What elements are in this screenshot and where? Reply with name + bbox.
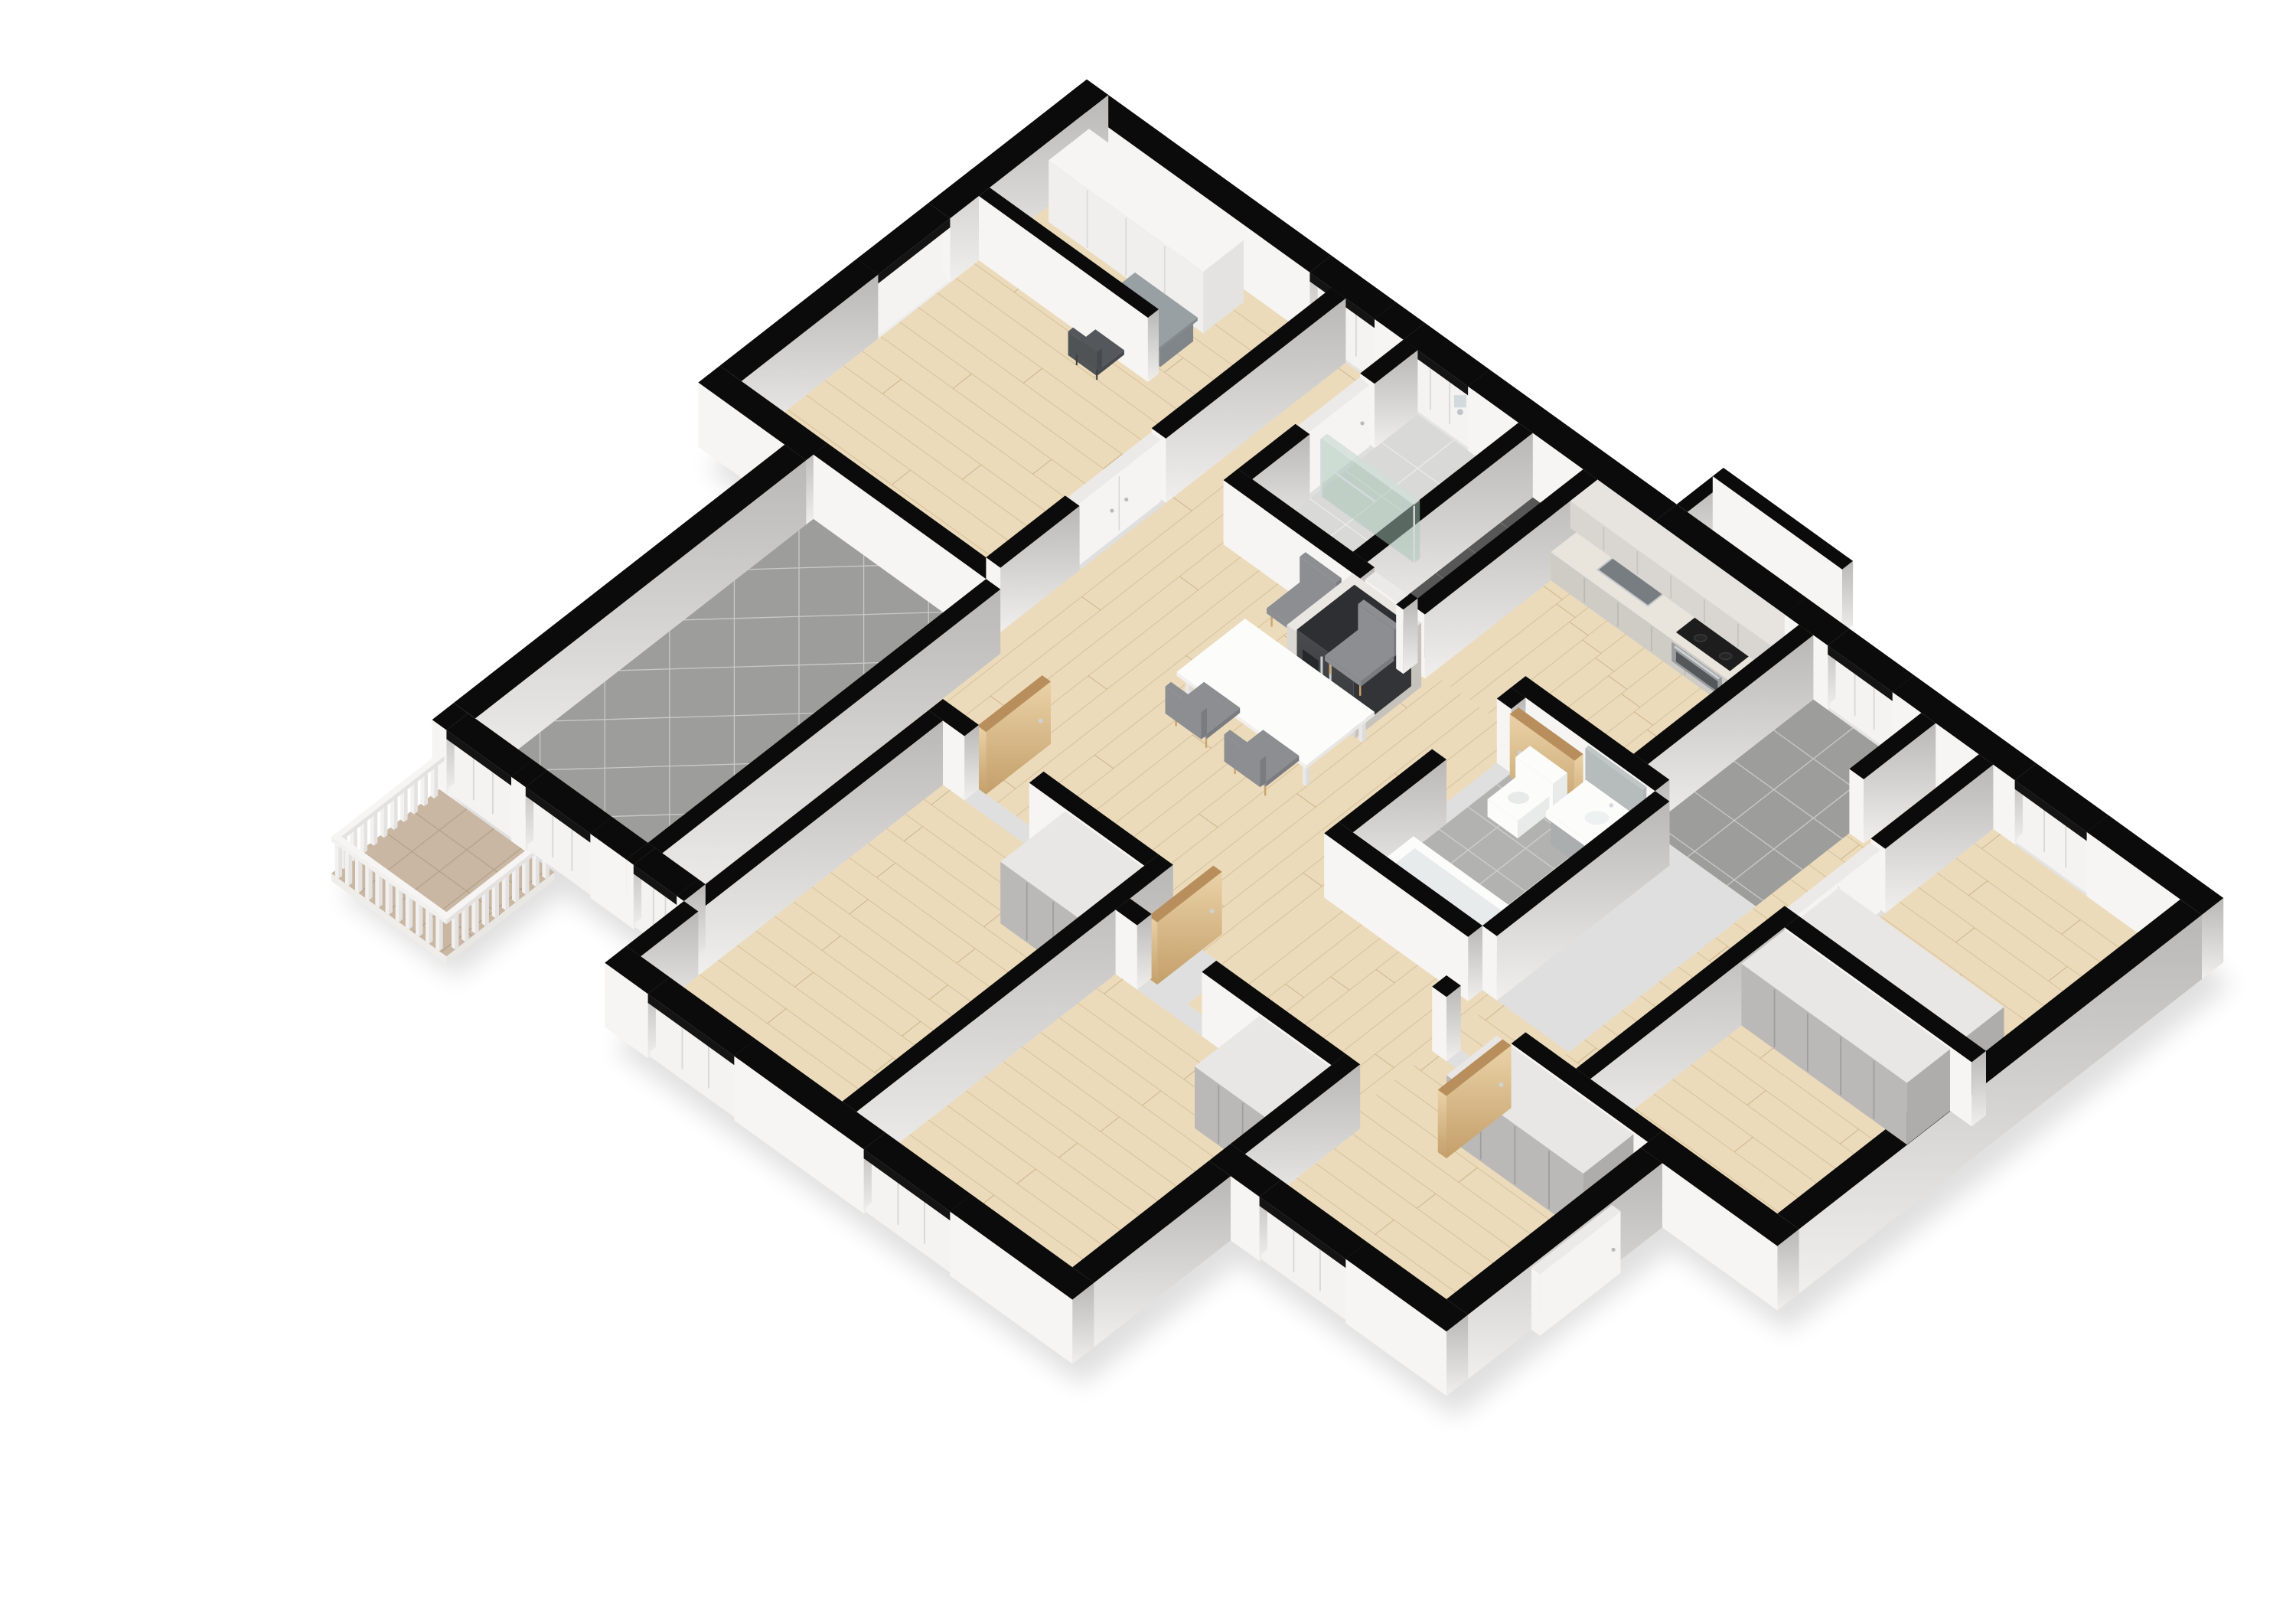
floorplan-canvas — [0, 0, 2296, 1623]
hall-s-wall-1 — [1432, 975, 1461, 1061]
floorplan-3d-render — [0, 0, 2296, 1623]
shower-s-wall-2 — [1396, 593, 1417, 674]
b3-n-wall-1 — [1116, 899, 1152, 990]
